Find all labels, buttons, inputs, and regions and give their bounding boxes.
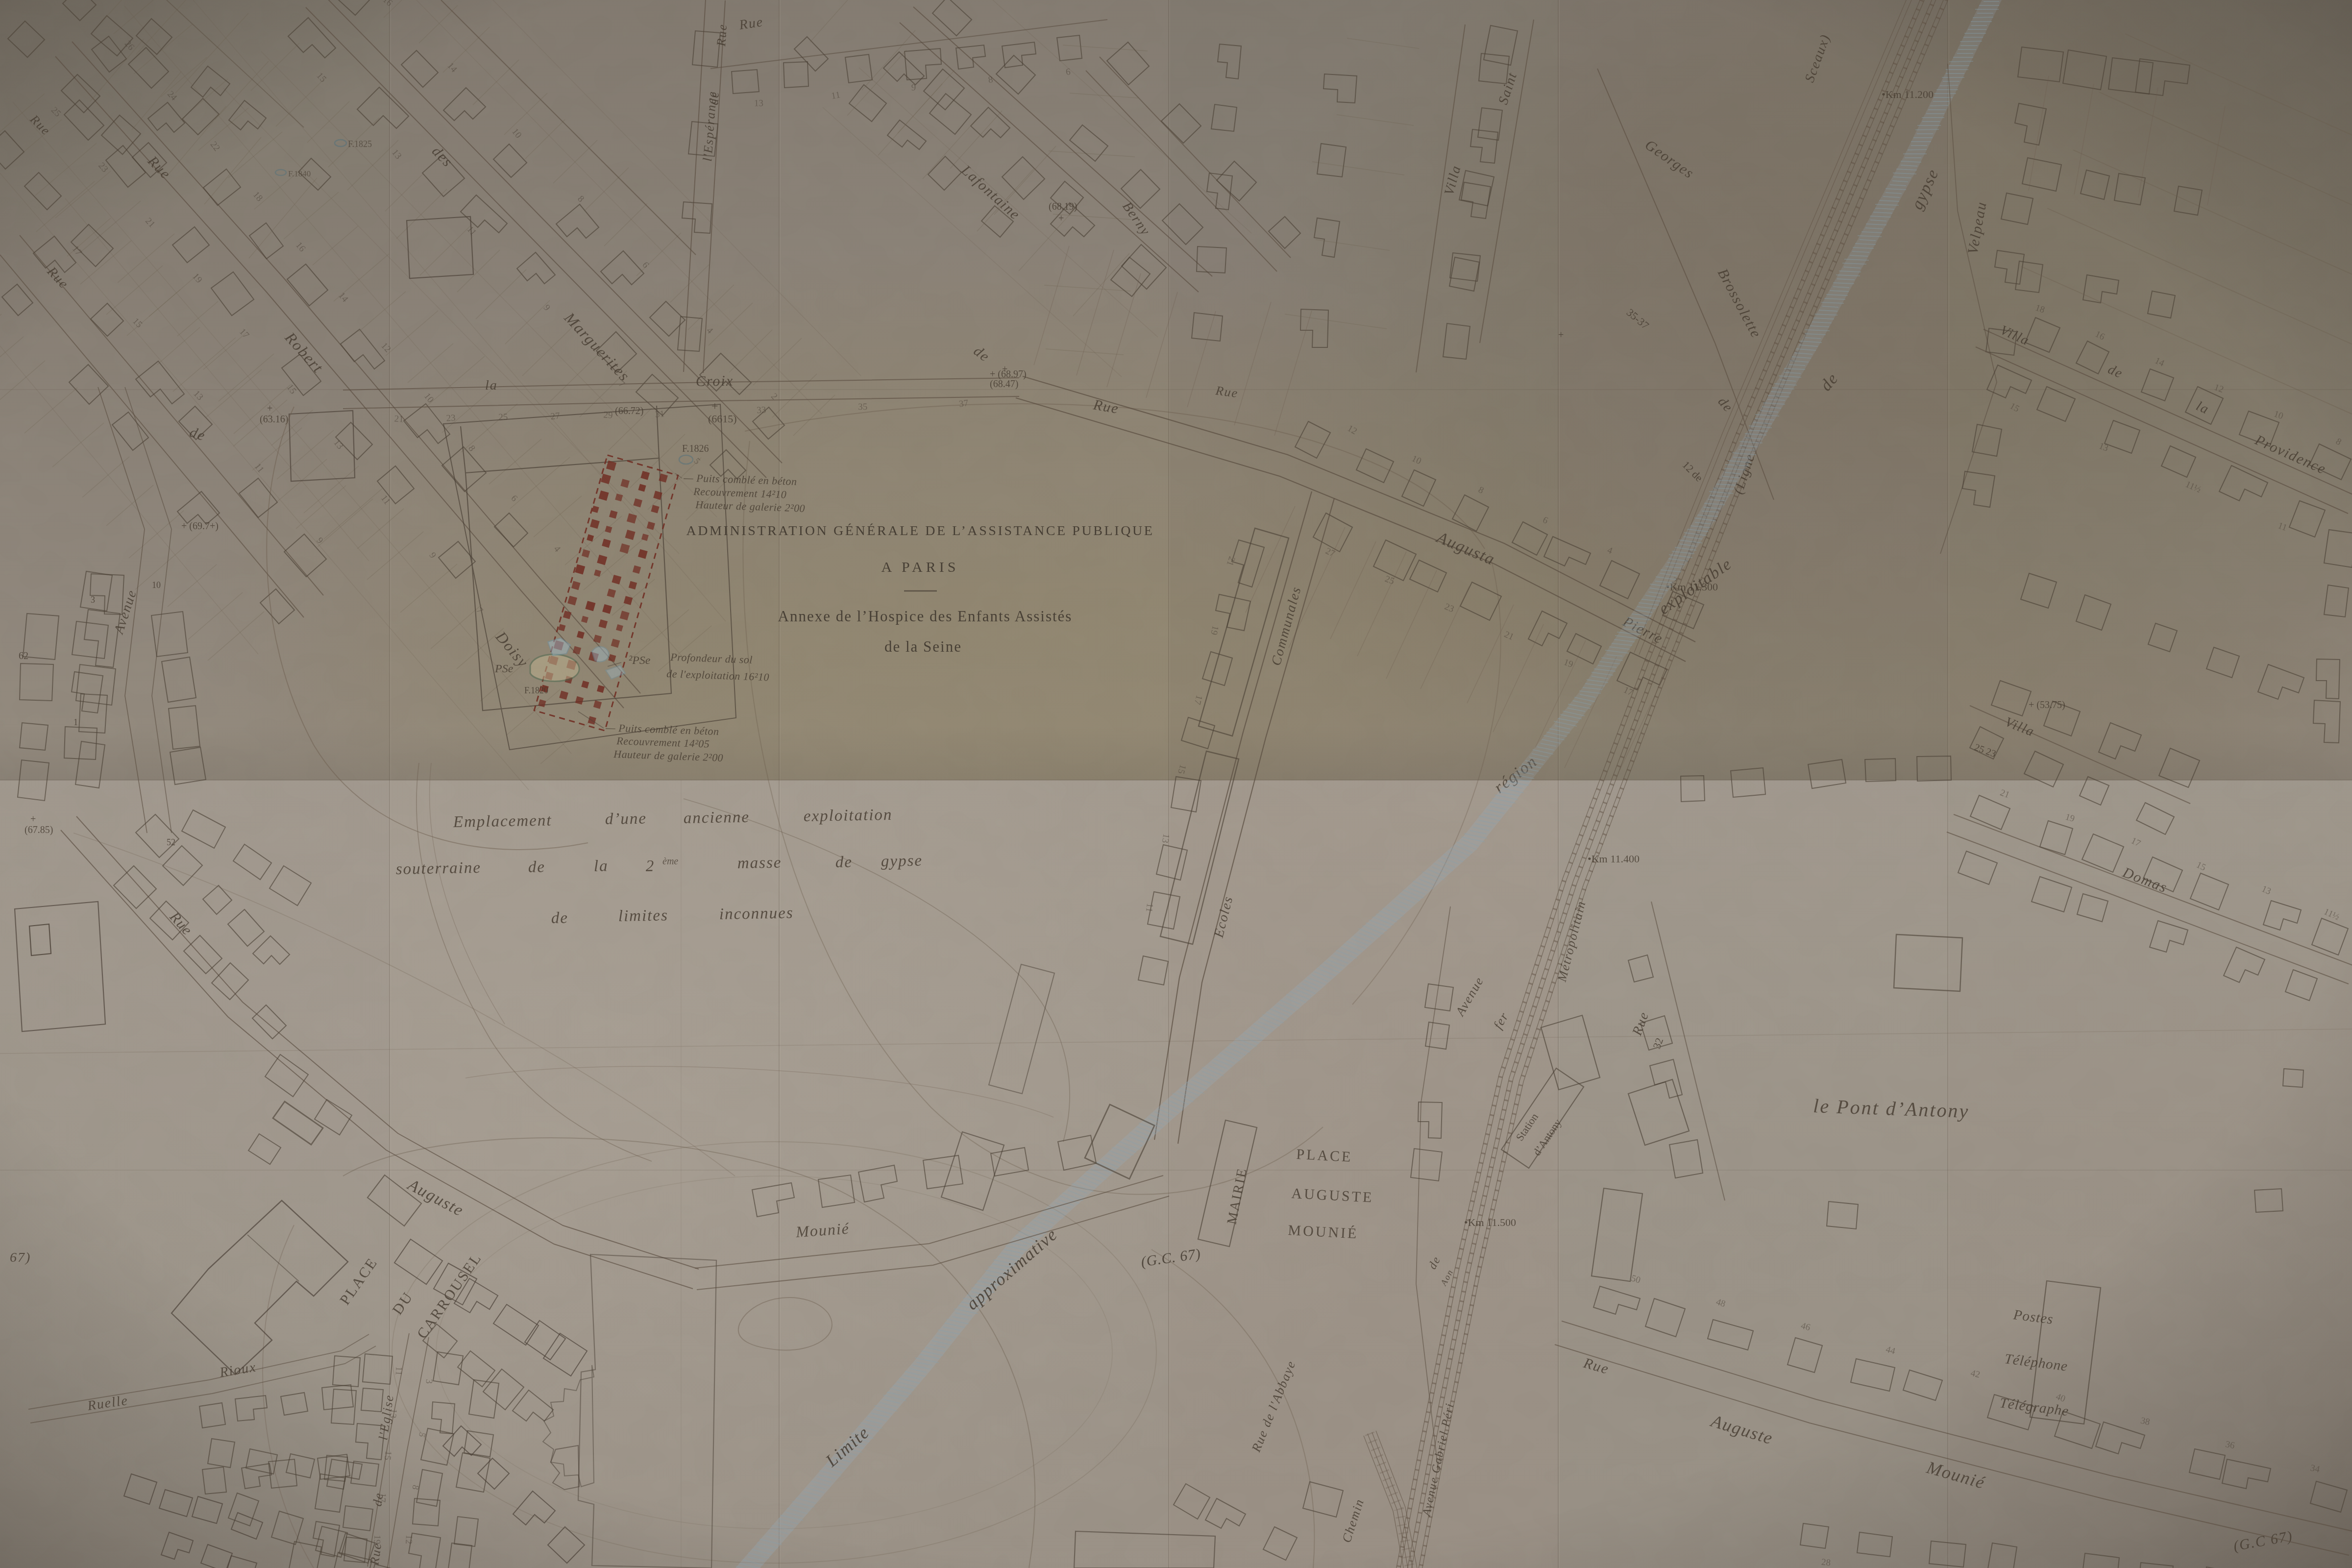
svg-text:29: 29 (603, 409, 613, 420)
svg-text:de: de (551, 908, 568, 927)
svg-text:67): 67) (10, 1249, 31, 1265)
svg-text:Annexe de l’Hospice des En: Annexe de l’Hospice des Enfants Assistés (778, 608, 1073, 625)
svg-text:F.1840: F.1840 (288, 169, 311, 178)
svg-text:+ (53.75): + (53.75) (2029, 699, 2065, 710)
svg-text:1: 1 (73, 717, 78, 727)
svg-text:Croix: Croix (696, 372, 734, 389)
svg-text:17: 17 (377, 1493, 389, 1503)
svg-text:limites: limites (618, 906, 668, 925)
svg-text:(6615): (6615) (708, 413, 737, 425)
svg-text:(67.85): (67.85) (24, 824, 53, 835)
svg-text:+: + (267, 403, 273, 414)
svg-text:11: 11 (393, 1366, 404, 1376)
svg-text:PLACE: PLACE (1296, 1146, 1353, 1165)
svg-text:+: + (1558, 329, 1565, 340)
svg-text:Mounié: Mounié (795, 1219, 850, 1241)
svg-text:gypse: gypse (881, 852, 923, 870)
svg-text:36: 36 (2225, 1439, 2236, 1450)
svg-text:de: de (528, 857, 545, 876)
svg-text:+ (68.97): + (68.97) (990, 368, 1027, 380)
svg-text:11: 11 (1144, 903, 1155, 913)
svg-text:la: la (593, 857, 608, 875)
svg-text:de: de (835, 853, 853, 871)
svg-text:Rue: Rue (714, 23, 730, 47)
svg-text:F.1825: F.1825 (348, 139, 372, 149)
svg-text:PSe: PSe (494, 662, 514, 675)
svg-text:12: 12 (404, 1535, 415, 1544)
svg-text:masse: masse (737, 853, 782, 872)
svg-text:10: 10 (152, 580, 161, 590)
svg-text:A PARIS: A PARIS (882, 559, 959, 575)
svg-text:23: 23 (446, 412, 456, 423)
svg-text:+ (69.7+): + (69.7+) (181, 520, 219, 532)
svg-text:•Km 11.200: •Km 11.200 (1882, 88, 1934, 100)
svg-text:ème: ème (662, 856, 678, 866)
svg-text:31: 31 (655, 408, 665, 419)
svg-text:F.1826: F.1826 (682, 443, 709, 454)
svg-text:15: 15 (383, 1450, 394, 1461)
svg-text:25: 25 (498, 412, 508, 422)
svg-text:exploitation: exploitation (803, 806, 892, 825)
svg-text:21: 21 (394, 413, 404, 424)
svg-text:souterraine: souterraine (395, 858, 481, 878)
svg-text:11: 11 (831, 89, 841, 101)
svg-text:(68.47): (68.47) (990, 378, 1018, 390)
svg-text:Emplacement: Emplacement (452, 811, 552, 831)
svg-text:35: 35 (858, 401, 867, 412)
svg-text:d’une: d’une (605, 809, 647, 828)
svg-text:13: 13 (754, 98, 763, 108)
svg-text:²PSe: ²PSe (629, 654, 651, 666)
svg-text:de la Seine: de la Seine (884, 638, 962, 655)
svg-text:ancienne: ancienne (683, 808, 750, 827)
svg-text:3: 3 (91, 595, 95, 605)
svg-text:62: 62 (19, 650, 28, 661)
svg-text:+: + (30, 813, 37, 824)
svg-text:inconnues: inconnues (719, 904, 793, 923)
svg-text:(63.16): (63.16) (260, 414, 288, 425)
svg-text:•Km 11.400: •Km 11.400 (1588, 853, 1640, 865)
svg-text:33: 33 (757, 404, 766, 415)
svg-text:13: 13 (1160, 833, 1172, 844)
svg-text:37: 37 (958, 397, 969, 409)
svg-text:F.1820: F.1820 (524, 686, 548, 695)
svg-text:la: la (485, 377, 498, 392)
svg-text:•Km 11.500: •Km 11.500 (1464, 1216, 1516, 1228)
svg-text:2: 2 (645, 857, 655, 875)
svg-text:13: 13 (388, 1408, 399, 1419)
svg-text:+: + (711, 399, 719, 412)
svg-text:28: 28 (1821, 1557, 1831, 1568)
svg-text:ADMINISTRATION GÉNÉRALE DE: ADMINISTRATION GÉNÉRALE DE L’ASSISTANCE … (686, 523, 1154, 538)
